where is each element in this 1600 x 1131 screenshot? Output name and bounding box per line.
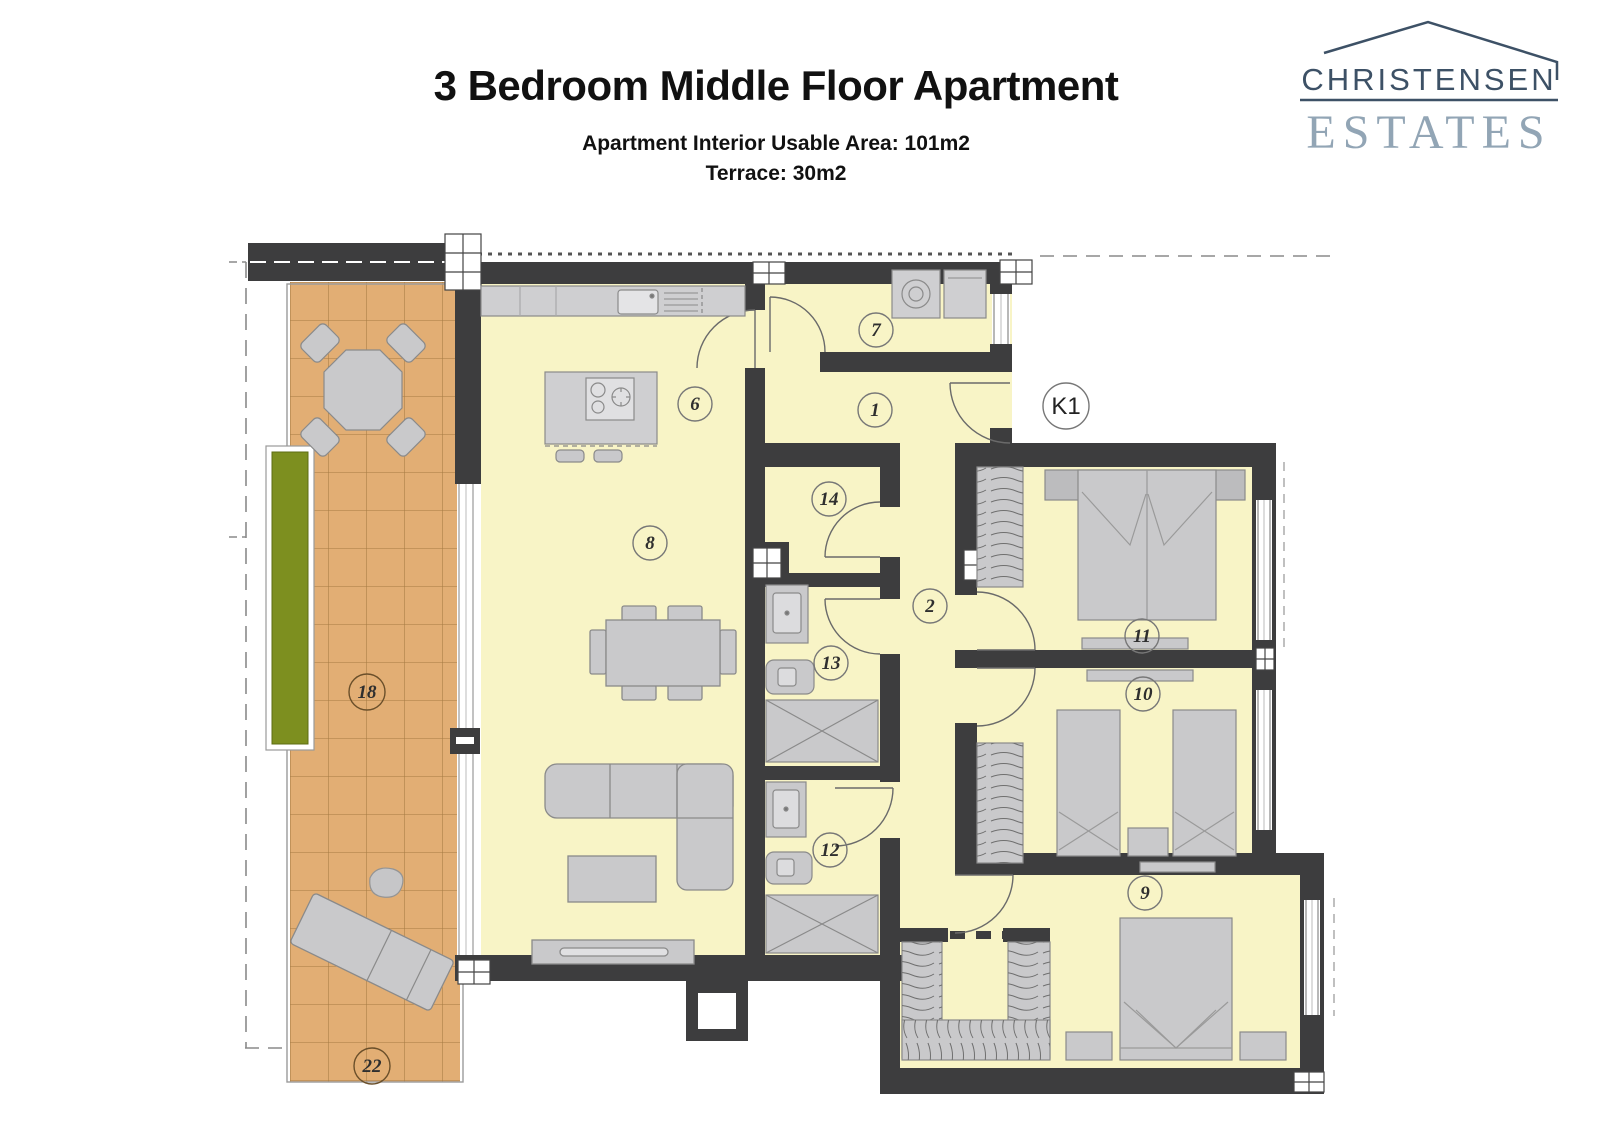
nightstand: [1240, 1032, 1286, 1060]
bedroom-3-window: [1304, 900, 1320, 1015]
column-icon: [1294, 1072, 1324, 1092]
sideboard: [1140, 862, 1215, 872]
svg-text:2: 2: [924, 596, 935, 617]
unit-label: K1: [1043, 383, 1089, 429]
svg-text:22: 22: [362, 1056, 383, 1077]
column-icon: [458, 960, 490, 984]
svg-text:1: 1: [870, 400, 880, 421]
svg-text:18: 18: [358, 682, 378, 703]
svg-text:8: 8: [645, 533, 655, 554]
bedroom-2-window: [1256, 690, 1272, 830]
coffee-table: [568, 856, 656, 902]
bedroom-1-window: [1256, 500, 1272, 640]
svg-text:14: 14: [820, 489, 839, 510]
bathroom-1-toilet-icon: [766, 660, 814, 694]
duct-vent: [753, 548, 781, 578]
svg-text:13: 13: [822, 653, 841, 674]
column-icon: [445, 234, 481, 290]
svg-text:12: 12: [821, 840, 841, 861]
svg-text:K1: K1: [1051, 393, 1080, 420]
svg-text:6: 6: [690, 394, 700, 415]
dryer-icon: [944, 270, 986, 318]
column-icon: [753, 262, 785, 284]
bathroom-2-sink-icon: [766, 782, 806, 837]
nightstand: [1066, 1032, 1112, 1060]
tv-cabinet: [532, 940, 694, 964]
nightstand: [1128, 828, 1168, 856]
svg-text:7: 7: [871, 320, 882, 341]
svg-text:10: 10: [1134, 684, 1154, 705]
sideboard: [1087, 670, 1193, 681]
hob-icon: [586, 378, 634, 420]
bathroom-2-shower: [766, 895, 878, 953]
planter-box: [266, 446, 314, 750]
utility-window: [992, 294, 1010, 344]
bathroom-1-shower: [766, 700, 878, 762]
dining-table-set: [590, 606, 736, 700]
bathroom-1-sink-icon: [766, 585, 808, 643]
column-icon: [1000, 260, 1032, 284]
washing-machine-icon: [892, 270, 940, 318]
bathroom-2-toilet-icon: [766, 852, 812, 884]
column-icon: [1256, 648, 1274, 670]
svg-text:9: 9: [1140, 883, 1150, 904]
terrace-plant: [370, 868, 403, 897]
svg-text:11: 11: [1133, 626, 1151, 647]
floor-plan: 1 2 6 7 8 9 10 11: [0, 0, 1600, 1131]
